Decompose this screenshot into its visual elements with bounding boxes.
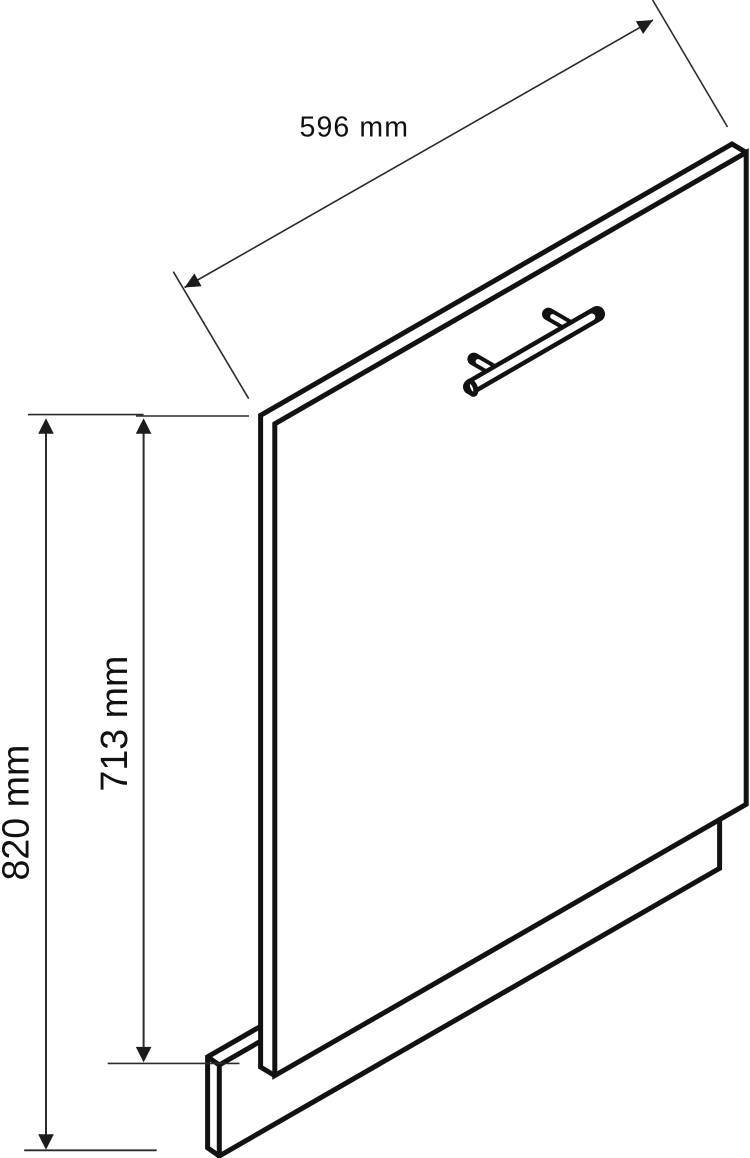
svg-text:820 mm: 820 mm bbox=[0, 745, 37, 881]
svg-text:596 mm: 596 mm bbox=[300, 112, 410, 144]
svg-text:713 mm: 713 mm bbox=[93, 656, 135, 792]
